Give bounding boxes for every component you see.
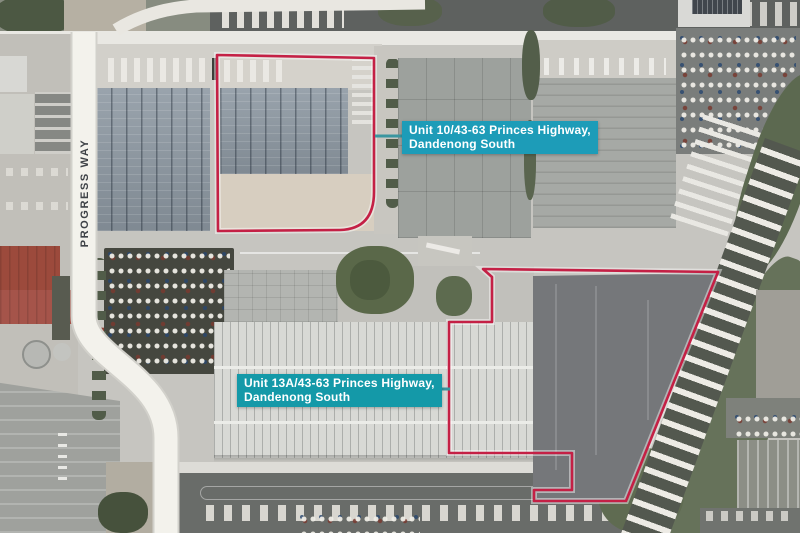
top-road: [116, 3, 425, 30]
unit13a-label-line1: Unit 13A/43-63 Princes Highway,: [244, 376, 435, 390]
unit10-boundary: [217, 55, 374, 231]
progress-way-label: PROGRESS WAY: [79, 139, 91, 248]
unit13a-label-line2: Dandenong South: [244, 390, 435, 404]
unit13a-label: Unit 13A/43-63 Princes Highway, Dandenon…: [237, 374, 442, 407]
unit10-boundary-glow: [217, 55, 374, 231]
aerial-photo: Unit 10/43-63 Princes Highway, Dandenong…: [0, 0, 800, 533]
unit10-label: Unit 10/43-63 Princes Highway, Dandenong…: [402, 121, 598, 154]
boundary-overlay: [0, 0, 800, 533]
unit10-label-line2: Dandenong South: [409, 137, 591, 151]
unit13a-parking: [533, 273, 718, 503]
progress-way-road-edge: [84, 32, 166, 533]
unit10-label-line1: Unit 10/43-63 Princes Highway,: [409, 123, 591, 137]
